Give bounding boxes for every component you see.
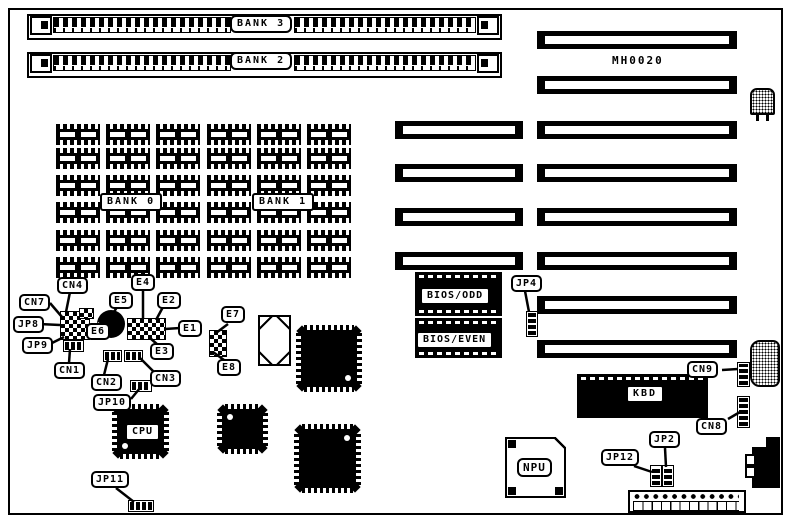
callout-e4: E4 [131,274,155,291]
callout-e8: E8 [217,359,241,376]
callout-cn8: CN8 [696,418,727,435]
callout-jp2: JP2 [649,431,680,448]
callout-cn9: CN9 [687,361,718,378]
callout-cn7: CN7 [19,294,50,311]
callout-e7: E7 [221,306,245,323]
callout-e2: E2 [157,292,181,309]
callout-cn1: CN1 [54,362,85,379]
callout-e1: E1 [178,320,202,337]
callout-cn3: CN3 [150,370,181,387]
callout-e6: E6 [86,323,110,340]
callout-e3: E3 [150,343,174,360]
callout-jp4: JP4 [511,275,542,292]
callout-jp12: JP12 [601,449,639,466]
callout-jp10: JP10 [93,394,131,411]
callout-jp9: JP9 [22,337,53,354]
callout-e5: E5 [109,292,133,309]
callout-cn2: CN2 [91,374,122,391]
motherboard-diagram: BANK 3 BANK 2 BANK 0 BANK 1 MH0020 BIOS/… [0,0,788,518]
callout-cn4: CN4 [57,277,88,294]
callout-jp11: JP11 [91,471,129,488]
callout-jp8: JP8 [13,316,44,333]
